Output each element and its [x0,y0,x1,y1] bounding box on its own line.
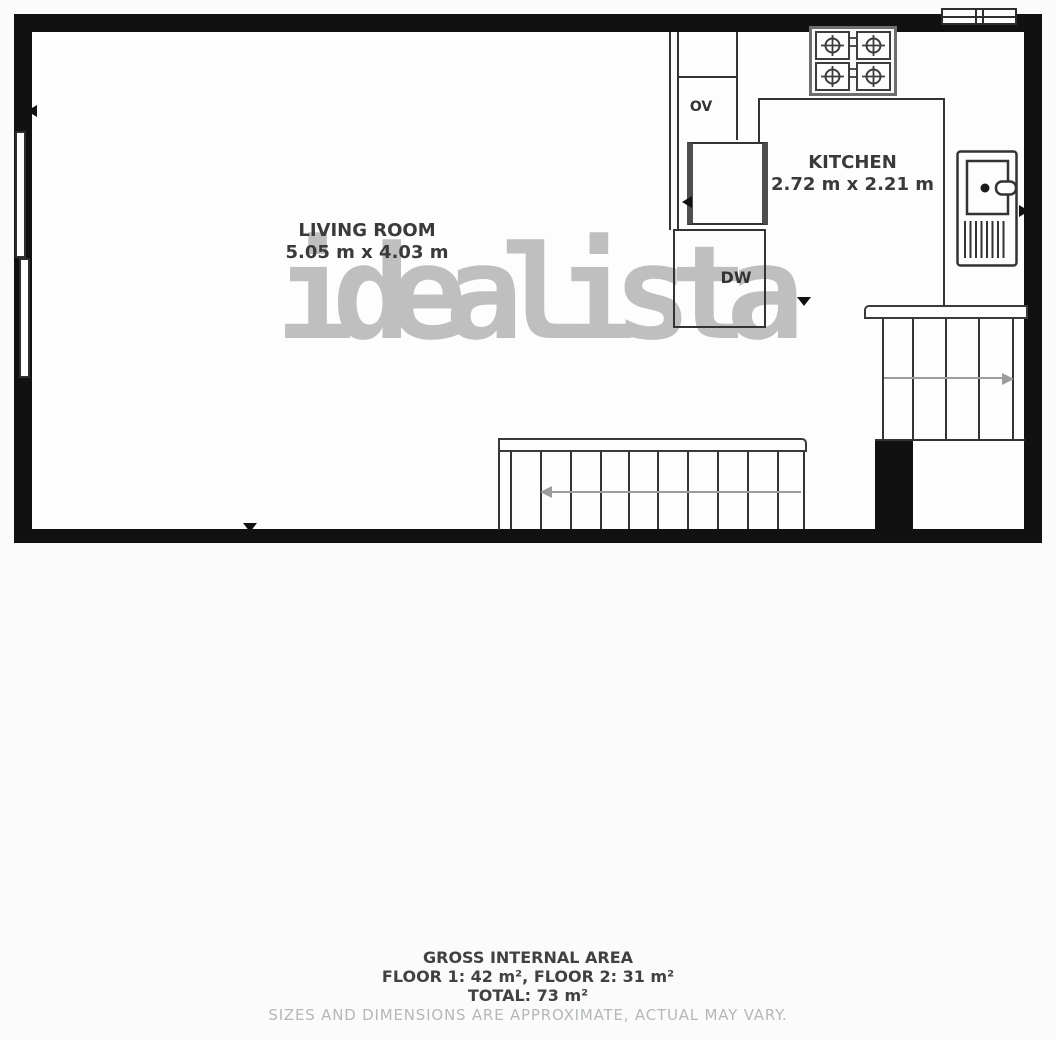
marker-arrow-icon [793,18,809,28]
marker-arrow-icon [247,21,263,31]
marker-arrow-icon [243,523,257,532]
window-mullion [982,10,984,23]
floor-plan-page: idealista OV DW [0,0,1056,1040]
boiler-icon [956,150,1018,267]
kitchen-outline-right [943,98,945,306]
wall-bottom [14,529,1042,543]
stair-bottom-line [875,439,1025,441]
cabinet-divider-line [677,76,738,78]
kitchen-label: KITCHEN 2.72 m x 2.21 m [770,152,935,196]
gross-area-title: GROSS INTERNAL AREA [0,948,1056,967]
kitchen-partition-line [677,32,679,230]
kitchen-name: KITCHEN [770,152,935,174]
stair-step-line [945,319,947,440]
kitchen-outline-left [758,98,760,144]
stair-handrail [864,305,1028,319]
living-room-name: LIVING ROOM [272,220,462,242]
cabinet-right-line [736,32,738,140]
dishwasher-label: DW [718,268,754,287]
total-area: TOTAL: 73 m² [0,986,1056,1005]
stair-direction-arrow-head [540,486,552,498]
stair-step-line [510,452,512,529]
floor-areas: FLOOR 1: 42 m², FLOOR 2: 31 m² [0,967,1056,986]
window-left-lower [19,258,30,378]
wall-right [1024,14,1042,543]
kitchen-dimensions: 2.72 m x 2.21 m [770,174,935,196]
oven-label: OV [686,99,716,115]
stair-direction-arrow-shaft [884,377,1004,379]
marker-arrow-icon [1019,205,1029,217]
window-left-upper [15,131,26,258]
window-mullion [975,10,977,23]
living-room-dimensions: 5.05 m x 4.03 m [272,242,462,264]
stair-step-line [978,319,980,440]
marker-arrow-icon [682,196,692,208]
kitchen-partition-line [669,32,671,230]
window-glazing-line [943,16,1015,18]
stair-step-line [882,319,884,440]
wall-stair-block [875,440,913,530]
stair-direction-arrow-head [1002,373,1014,385]
living-room-label: LIVING ROOM 5.05 m x 4.03 m [272,220,462,264]
window-top-right [941,8,1017,25]
stair-direction-arrow-shaft [549,491,801,493]
stair-step-line [803,452,805,529]
area-summary: GROSS INTERNAL AREA FLOOR 1: 42 m², FLOO… [0,948,1056,1024]
marker-arrow-icon [27,105,37,117]
disclaimer-text: SIZES AND DIMENSIONS ARE APPROXIMATE, AC… [0,1006,1056,1024]
stove-hob-icon [809,26,897,96]
kitchen-unit-square [687,142,768,225]
stair-step-line [912,319,914,440]
marker-arrow-icon [797,297,811,306]
kitchen-outline-top [758,98,945,100]
stair-handrail [498,438,807,452]
